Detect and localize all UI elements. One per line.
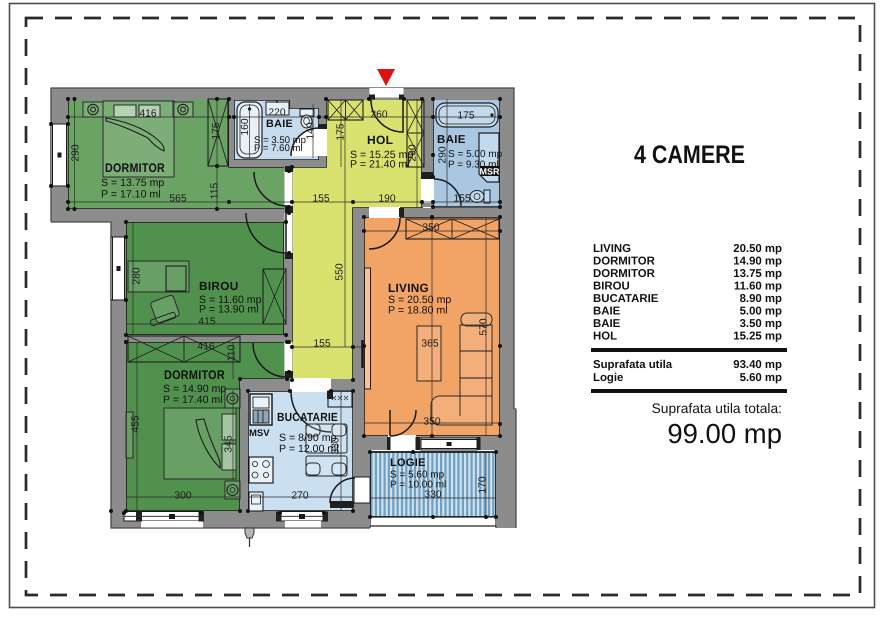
svg-text:170: 170 <box>478 476 489 493</box>
svg-text:280: 280 <box>132 267 143 284</box>
svg-text:15.25 mp: 15.25 mp <box>733 331 782 343</box>
svg-text:P = 17.40 ml: P = 17.40 ml <box>163 394 223 406</box>
svg-text:155: 155 <box>453 194 470 205</box>
svg-text:S = 13.75 mp: S = 13.75 mp <box>101 177 164 189</box>
svg-text:5.00 mp: 5.00 mp <box>740 306 782 318</box>
svg-text:BIROU: BIROU <box>199 279 239 293</box>
svg-text:416: 416 <box>197 342 214 353</box>
svg-text:365: 365 <box>421 339 438 350</box>
svg-text:140: 140 <box>306 122 317 139</box>
svg-text:LIVING: LIVING <box>388 281 429 295</box>
svg-text:P = 12.00 ml: P = 12.00 ml <box>279 443 339 455</box>
svg-text:BUCATARIE: BUCATARIE <box>277 410 338 424</box>
svg-text:Logie: Logie <box>593 372 623 384</box>
svg-text:BAIE: BAIE <box>593 318 621 330</box>
svg-text:P = 21.40 ml: P = 21.40 ml <box>350 159 410 171</box>
svg-text:BIROU: BIROU <box>593 281 630 293</box>
svg-text:350: 350 <box>423 417 440 428</box>
svg-text:P = 18.80 ml: P = 18.80 ml <box>388 305 448 317</box>
svg-text:P = 13.90 ml: P = 13.90 ml <box>199 304 259 316</box>
svg-text:270: 270 <box>291 491 308 502</box>
svg-text:5.60 mp: 5.60 mp <box>740 372 782 384</box>
svg-text:160: 160 <box>240 118 251 135</box>
svg-text:570: 570 <box>479 318 490 335</box>
svg-text:290: 290 <box>71 144 82 161</box>
svg-text:115: 115 <box>210 183 221 200</box>
svg-text:416: 416 <box>139 109 156 120</box>
svg-text:LIVING: LIVING <box>593 243 631 255</box>
svg-text:BUCATARIE: BUCATARIE <box>593 293 659 305</box>
svg-text:P = 10.00 ml: P = 10.00 ml <box>390 480 446 491</box>
svg-text:300: 300 <box>174 491 191 502</box>
svg-text:455: 455 <box>131 415 142 432</box>
svg-text:8.90 mp: 8.90 mp <box>740 293 782 305</box>
svg-text:345: 345 <box>224 435 235 452</box>
svg-text:175: 175 <box>336 123 347 140</box>
svg-text:11.60 mp: 11.60 mp <box>734 281 782 293</box>
svg-text:20.50 mp: 20.50 mp <box>733 243 782 255</box>
svg-text:155: 155 <box>312 194 329 205</box>
svg-text:415: 415 <box>198 317 215 328</box>
svg-text:MSV: MSV <box>249 428 270 439</box>
svg-text:S = 5.00 mp: S = 5.00 mp <box>448 149 503 160</box>
svg-text:BAIE: BAIE <box>266 118 293 130</box>
svg-text:3.50 mp: 3.50 mp <box>740 318 782 330</box>
svg-text:99.00 mp: 99.00 mp <box>667 418 782 449</box>
svg-text:P = 9.30 ml: P = 9.30 ml <box>448 160 499 171</box>
svg-text:P = 7.60 ml: P = 7.60 ml <box>254 143 303 154</box>
svg-text:BAIE: BAIE <box>437 134 466 146</box>
svg-text:LOGIE: LOGIE <box>390 457 426 469</box>
svg-text:93.40 mp: 93.40 mp <box>733 359 782 371</box>
svg-text:HOL: HOL <box>367 133 393 147</box>
svg-text:HOL: HOL <box>593 331 617 343</box>
svg-text:190: 190 <box>378 194 395 205</box>
svg-text:P = 17.10 ml: P = 17.10 ml <box>101 189 161 201</box>
svg-text:4 CAMERE: 4 CAMERE <box>634 141 745 169</box>
svg-text:DORMITOR: DORMITOR <box>164 368 225 382</box>
svg-text:175: 175 <box>211 122 222 139</box>
svg-text:BAIE: BAIE <box>593 306 621 318</box>
svg-text:260: 260 <box>370 110 387 121</box>
svg-text:Suprafata utila: Suprafata utila <box>593 359 673 371</box>
svg-text:13.75 mp: 13.75 mp <box>733 268 782 280</box>
svg-text:550: 550 <box>335 263 346 280</box>
svg-text:110: 110 <box>227 345 238 362</box>
svg-text:175: 175 <box>457 111 474 122</box>
svg-text:14.90 mp: 14.90 mp <box>733 256 782 268</box>
svg-text:DORMITOR: DORMITOR <box>593 256 655 268</box>
svg-text:330: 330 <box>424 490 441 501</box>
svg-text:565: 565 <box>169 194 186 205</box>
svg-text:Suprafata utila totala:: Suprafata utila totala: <box>652 401 782 416</box>
svg-text:155: 155 <box>313 339 330 350</box>
svg-text:350: 350 <box>422 223 439 234</box>
svg-text:DORMITOR: DORMITOR <box>593 268 655 280</box>
svg-text:DORMITOR: DORMITOR <box>105 161 165 175</box>
